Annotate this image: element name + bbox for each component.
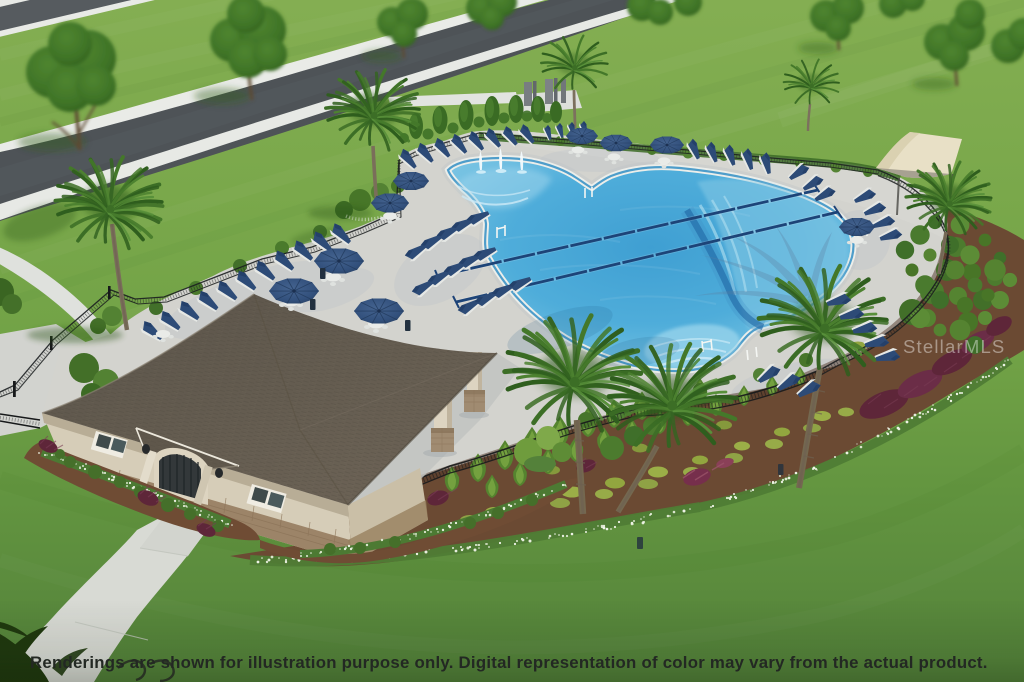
svg-text:StellarMLS: StellarMLS xyxy=(903,336,1005,357)
svg-text:Renderings are shown for illus: Renderings are shown for illustration pu… xyxy=(30,653,988,672)
